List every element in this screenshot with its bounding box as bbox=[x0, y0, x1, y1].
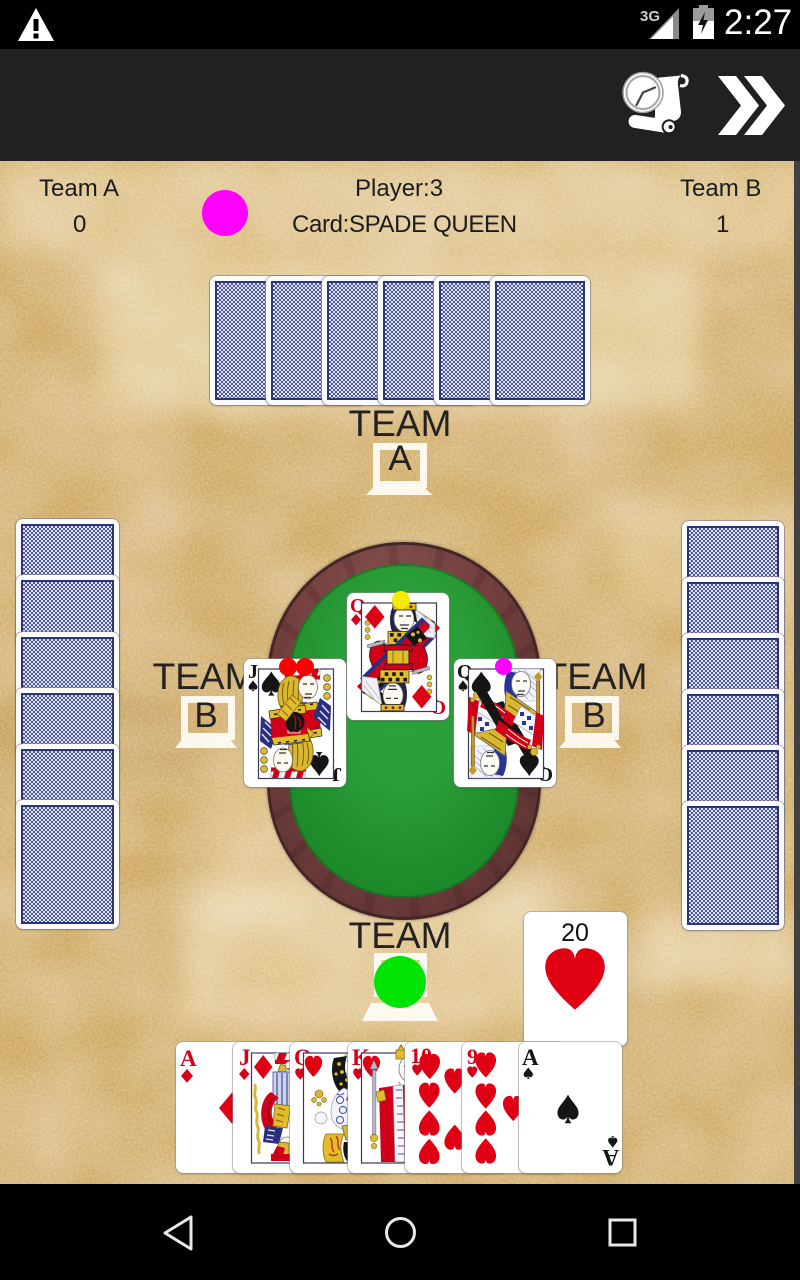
svg-text:20: 20 bbox=[561, 919, 589, 947]
svg-text:J: J bbox=[248, 661, 258, 683]
svg-text:J: J bbox=[239, 1045, 251, 1070]
svg-text:A: A bbox=[180, 1046, 197, 1071]
svg-text:A: A bbox=[602, 1145, 619, 1170]
svg-text:A: A bbox=[522, 1045, 539, 1070]
